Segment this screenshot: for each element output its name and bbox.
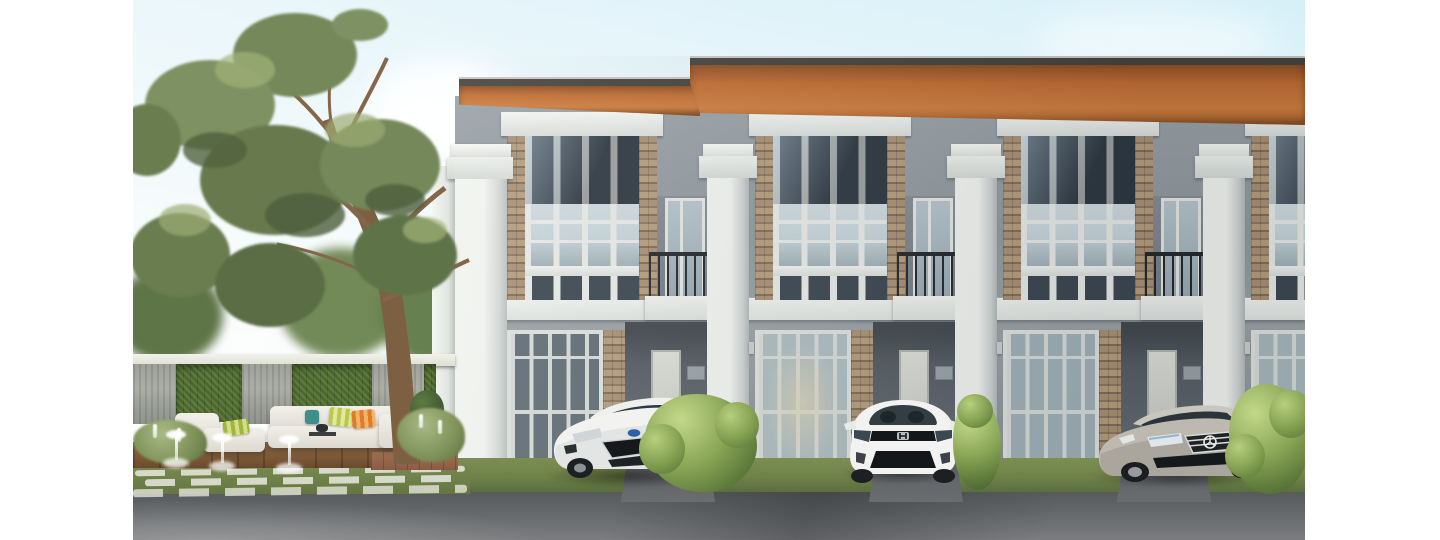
carport-bush: [953, 398, 1001, 490]
stone-cladding-strip: [1003, 136, 1021, 300]
white-flower-spike: [153, 424, 157, 438]
pilaster-cap: [699, 156, 757, 178]
window-sill: [1021, 266, 1135, 276]
carport-bush: [1229, 384, 1305, 494]
fountain-jet: [276, 435, 302, 475]
car-honda-hatchback: [842, 390, 964, 484]
upper-dark-windows: [1021, 136, 1135, 204]
wall-sconce: [749, 342, 754, 354]
rendered-image-canvas: [0, 0, 1440, 540]
road-highlight: [133, 500, 553, 540]
window-sill: [525, 266, 639, 276]
white-flower-spike: [438, 420, 442, 434]
wall-sconce: [997, 342, 1002, 354]
flowering-shrub: [397, 408, 465, 462]
wall-sconce: [1245, 342, 1250, 354]
fountain-jet: [163, 430, 189, 470]
pilaster-cap: [1195, 156, 1253, 178]
pilaster-cap: [951, 144, 1001, 156]
upper-window-bay: [773, 136, 887, 300]
ground-floor-glass-door: [1003, 330, 1099, 462]
window-sill: [773, 266, 887, 276]
upper-window-bay: [1269, 136, 1305, 300]
casement-windows: [773, 204, 887, 266]
tree-foliage: [133, 9, 457, 327]
pilaster-cap: [703, 144, 753, 156]
upper-dark-windows: [525, 136, 639, 204]
window-bay-cap: [501, 112, 663, 136]
carport-bush: [645, 394, 757, 492]
render-scene: [133, 0, 1305, 540]
spandrel-panels: [773, 276, 887, 300]
casement-windows: [1269, 204, 1305, 266]
upper-dark-windows: [773, 136, 887, 204]
spandrel-panels: [525, 276, 639, 300]
upper-window-bay: [1021, 136, 1135, 300]
upper-dark-windows: [1269, 136, 1305, 204]
casement-windows: [525, 204, 639, 266]
spandrel-panels: [1269, 276, 1305, 300]
spandrel-panels: [1021, 276, 1135, 300]
fountain-jet: [209, 433, 235, 473]
window-sill: [1269, 266, 1305, 276]
pilaster-cap: [947, 156, 1005, 178]
stone-cladding-strip: [755, 136, 773, 300]
upper-window-bay: [525, 136, 639, 300]
roof-fascia-main: [690, 56, 1305, 65]
roof-fascia-left: [459, 77, 700, 86]
white-flower-spike: [419, 414, 423, 428]
stone-cladding-strip: [1251, 136, 1269, 300]
ground-floor-glass-door: [755, 330, 851, 462]
pilaster-cap: [1199, 144, 1249, 156]
casement-windows: [1021, 204, 1135, 266]
